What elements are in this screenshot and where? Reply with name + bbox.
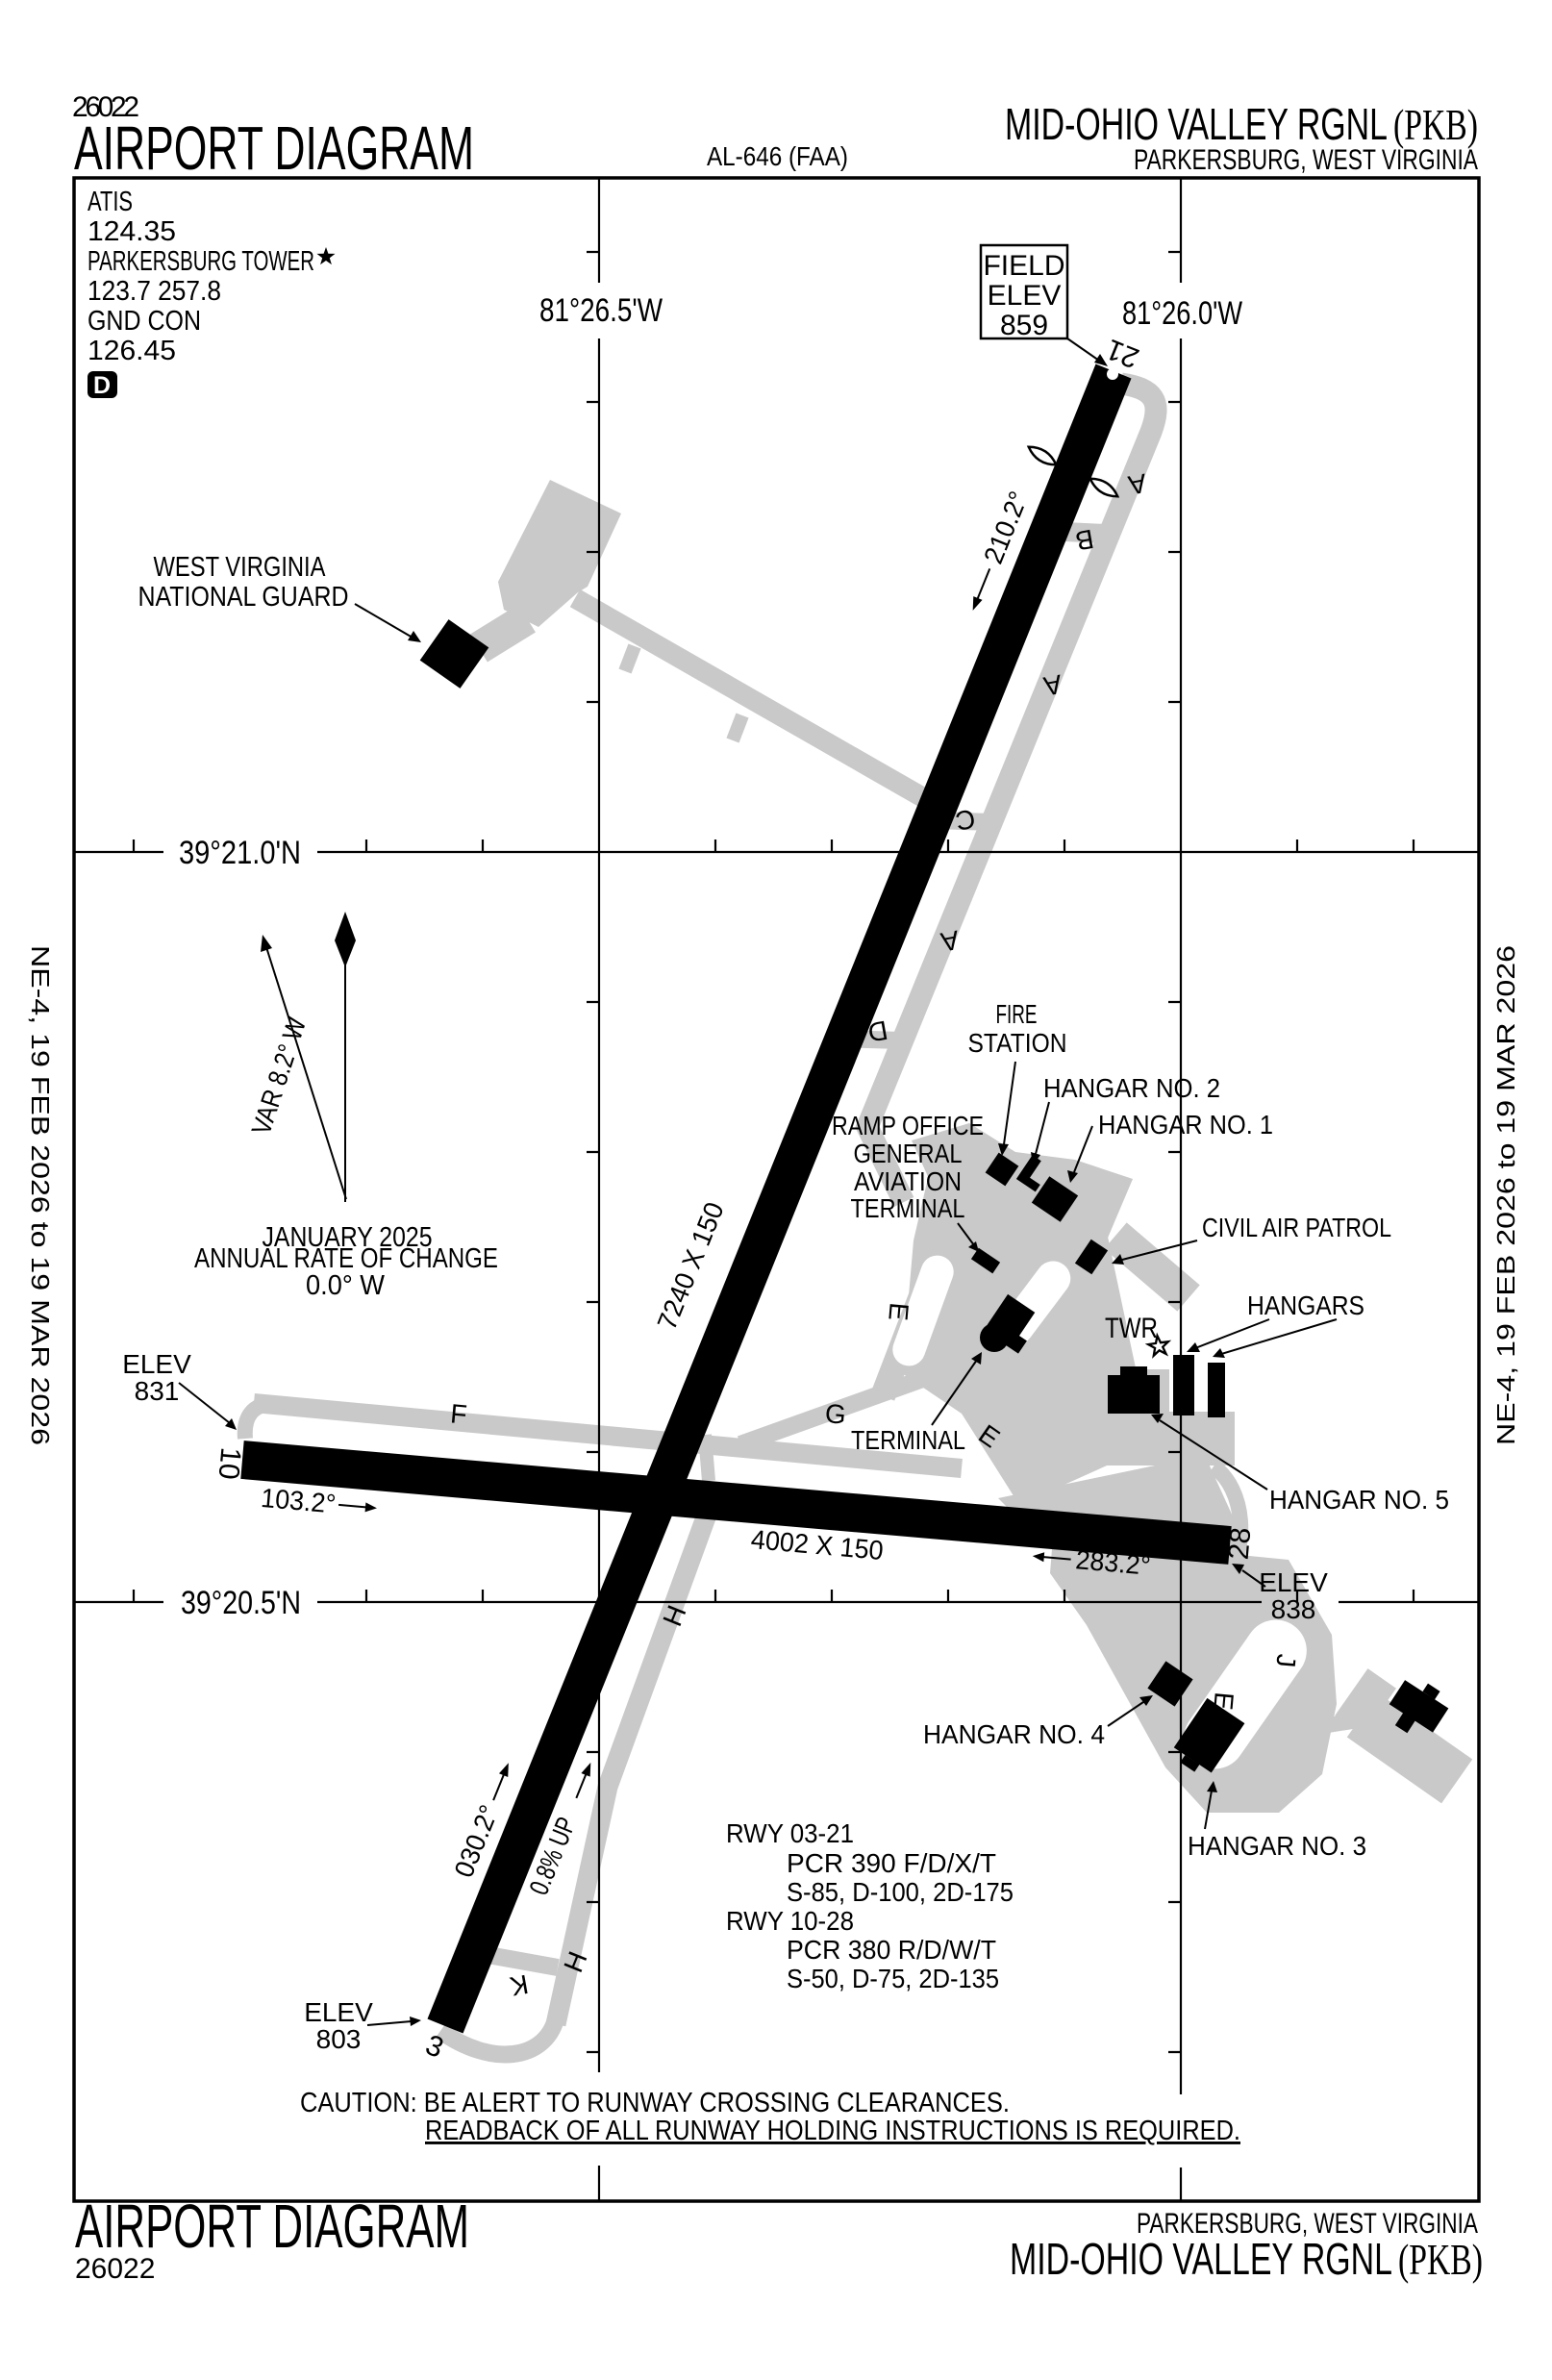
svg-text:FIELD: FIELD	[983, 250, 1064, 282]
svg-text:PARKERSBURG, WEST VIRGINIA: PARKERSBURG, WEST VIRGINIA	[1134, 144, 1478, 176]
svg-text:124.35: 124.35	[88, 216, 176, 247]
svg-text:HANGAR NO. 5: HANGAR NO. 5	[1269, 1485, 1449, 1515]
svg-text:28: 28	[1223, 1526, 1258, 1561]
svg-text:PCR 390 F/D/X/T: PCR 390 F/D/X/T	[787, 1848, 996, 1878]
svg-text:AVIATION: AVIATION	[854, 1166, 962, 1196]
svg-text:E: E	[883, 1301, 914, 1321]
svg-text:39°20.5'N: 39°20.5'N	[181, 1585, 301, 1621]
svg-text:39°21.0'N: 39°21.0'N	[179, 835, 301, 871]
svg-text:RWY 10-28: RWY 10-28	[726, 1906, 854, 1936]
svg-text:HANGARS: HANGARS	[1247, 1290, 1364, 1320]
svg-text:NE-4, 19 FEB 2026 to 19 MAR: NE-4, 19 FEB 2026 to 19 MAR 2026	[26, 945, 55, 1445]
svg-text:TERMINAL: TERMINAL	[851, 1425, 965, 1455]
svg-text:ATIS: ATIS	[88, 187, 133, 217]
svg-text:RAMP OFFICE: RAMP OFFICE	[832, 1111, 984, 1140]
svg-text:S-50, D-75, 2D-135: S-50, D-75, 2D-135	[787, 1964, 999, 1993]
svg-text:ELEV: ELEV	[122, 1349, 191, 1379]
svg-text:S-85, D-100, 2D-175: S-85, D-100, 2D-175	[787, 1877, 1014, 1907]
svg-text:D: D	[93, 372, 111, 399]
svg-text:MID-OHIO VALLEY RGNL(PKB): MID-OHIO VALLEY RGNL(PKB)	[1010, 2234, 1483, 2284]
svg-text:ELEV: ELEV	[1259, 1567, 1328, 1597]
svg-text:ELEV: ELEV	[304, 1997, 373, 2027]
svg-text:STATION: STATION	[968, 1028, 1067, 1058]
svg-text:AL-646 (FAA): AL-646 (FAA)	[707, 141, 848, 171]
svg-text:GND CON: GND CON	[88, 306, 201, 337]
svg-text:PARKERSBURG TOWER: PARKERSBURG TOWER	[88, 246, 314, 277]
svg-text:CIVIL AIR PATROL: CIVIL AIR PATROL	[1202, 1213, 1391, 1242]
svg-text:WEST VIRGINIA: WEST VIRGINIA	[154, 552, 327, 583]
svg-text:CAUTION: BE ALERT TO RUNWAY CR: CAUTION: BE ALERT TO RUNWAY CROSSING CLE…	[300, 2088, 1010, 2118]
svg-text:G: G	[824, 1398, 847, 1430]
svg-text:GENERAL: GENERAL	[854, 1139, 963, 1168]
svg-text:HANGAR NO. 4: HANGAR NO. 4	[923, 1719, 1105, 1749]
svg-text:123.7 257.8: 123.7 257.8	[88, 276, 221, 307]
svg-text:J: J	[1270, 1653, 1301, 1669]
svg-text:NE-4, 19 FEB 2026 to 19 MAR: NE-4, 19 FEB 2026 to 19 MAR 2026	[1491, 945, 1520, 1445]
svg-text:126.45: 126.45	[88, 336, 176, 366]
svg-text:859: 859	[1000, 310, 1048, 341]
svg-text:MID-OHIO VALLEY RGNL(PKB): MID-OHIO VALLEY RGNL(PKB)	[1005, 99, 1478, 149]
svg-text:E: E	[1208, 1691, 1239, 1711]
svg-text:838: 838	[1271, 1594, 1316, 1624]
svg-text:FIRE: FIRE	[996, 999, 1038, 1029]
svg-text:AIRPORT DIAGRAM: AIRPORT DIAGRAM	[75, 2192, 469, 2261]
svg-text:PCR 380 R/D/W/T: PCR 380 R/D/W/T	[787, 1935, 996, 1965]
svg-text:AIRPORT DIAGRAM: AIRPORT DIAGRAM	[74, 113, 474, 183]
svg-text:803: 803	[316, 2024, 362, 2054]
svg-text:ELEV: ELEV	[988, 280, 1062, 312]
svg-text:F: F	[449, 1398, 468, 1429]
svg-text:HANGAR NO. 1: HANGAR NO. 1	[1098, 1110, 1273, 1140]
svg-text:HANGAR NO. 3: HANGAR NO. 3	[1188, 1831, 1366, 1861]
svg-text:26022: 26022	[75, 2253, 155, 2285]
svg-text:81°26.0'W: 81°26.0'W	[1122, 295, 1242, 332]
svg-text:NATIONAL GUARD: NATIONAL GUARD	[138, 582, 349, 613]
svg-text:831: 831	[135, 1376, 180, 1406]
svg-text:81°26.5'W: 81°26.5'W	[539, 292, 663, 329]
svg-text:10: 10	[213, 1446, 247, 1481]
svg-text:RWY 03-21: RWY 03-21	[726, 1818, 854, 1848]
svg-text:HANGAR NO. 2: HANGAR NO. 2	[1043, 1073, 1220, 1103]
svg-text:READBACK OF ALL RUNWAY HOLDING: READBACK OF ALL RUNWAY HOLDING INSTRUCTI…	[425, 2116, 1240, 2146]
svg-text:TERMINAL: TERMINAL	[851, 1193, 965, 1223]
svg-text:0.0° W: 0.0° W	[306, 1270, 386, 1301]
svg-text:TWR: TWR	[1105, 1313, 1158, 1344]
